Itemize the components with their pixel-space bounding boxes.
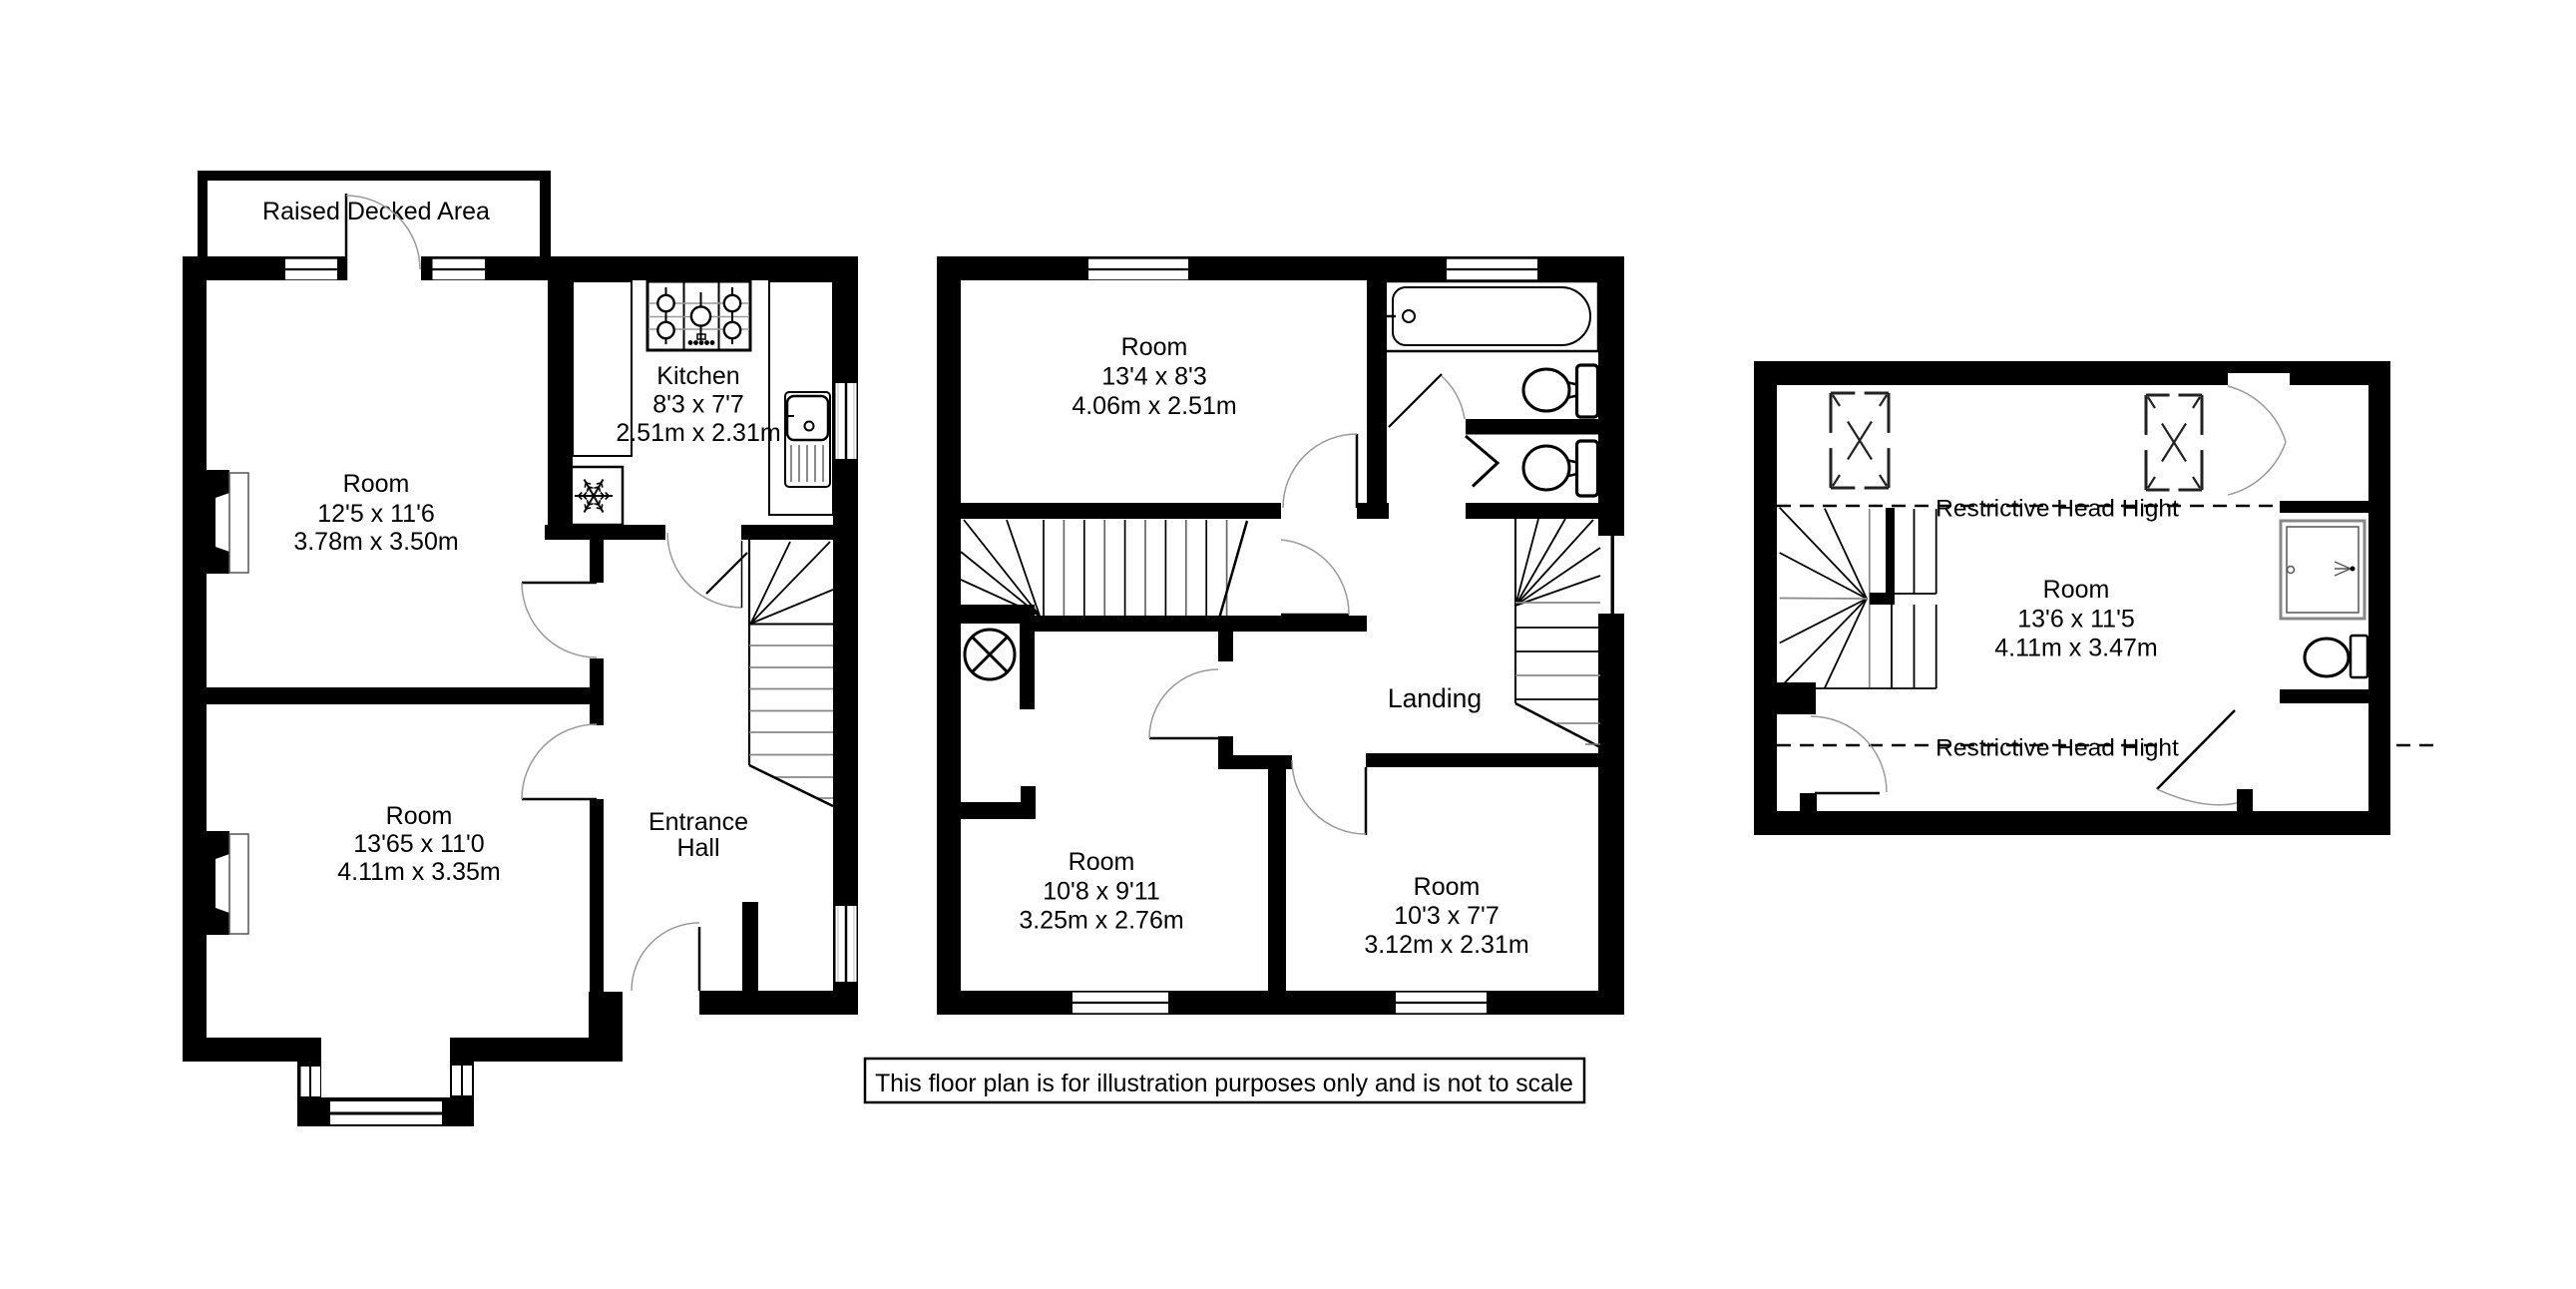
svg-text:Landing: Landing (1388, 683, 1482, 713)
svg-text:Hall: Hall (676, 834, 719, 862)
svg-text:Restrictive Head Hight: Restrictive Head Hight (1935, 735, 2179, 762)
svg-text:Entrance: Entrance (648, 808, 748, 836)
svg-text:Room: Room (1121, 333, 1188, 361)
svg-text:4.11m x 3.35m: 4.11m x 3.35m (337, 858, 501, 886)
svg-text:3.25m x 2.76m: 3.25m x 2.76m (1019, 907, 1183, 935)
svg-text:13'65 x 11'0: 13'65 x 11'0 (353, 830, 484, 858)
svg-text:12'5 x 11'6: 12'5 x 11'6 (317, 500, 435, 528)
svg-text:Room: Room (1414, 873, 1481, 901)
svg-text:8'3 x 7'7: 8'3 x 7'7 (652, 391, 744, 419)
svg-text:2.51m x 2.31m: 2.51m x 2.31m (616, 419, 780, 447)
svg-text:4.06m x 2.51m: 4.06m x 2.51m (1072, 392, 1236, 420)
svg-text:13'4 x 8'3: 13'4 x 8'3 (1101, 363, 1206, 391)
svg-text:10'3 x 7'7: 10'3 x 7'7 (1394, 902, 1499, 930)
svg-text:Restrictive Head Hight: Restrictive Head Hight (1935, 496, 2179, 523)
svg-text:4.11m x 3.47m: 4.11m x 3.47m (1994, 634, 2158, 661)
svg-text:3.78m x 3.50m: 3.78m x 3.50m (293, 528, 458, 556)
svg-text:This floor plan is for illustr: This floor plan is for illustration purp… (875, 1071, 1573, 1097)
svg-text:13'6 x 11'5: 13'6 x 11'5 (2017, 606, 2135, 634)
svg-text:10'8 x 9'11: 10'8 x 9'11 (1043, 877, 1160, 905)
svg-text:Room: Room (1069, 848, 1135, 876)
svg-text:3.12m x 2.31m: 3.12m x 2.31m (1364, 931, 1528, 959)
svg-text:Room: Room (2043, 576, 2110, 604)
svg-text:Room: Room (343, 470, 410, 498)
svg-text:Room: Room (386, 802, 453, 830)
svg-text:Kitchen: Kitchen (656, 362, 739, 390)
